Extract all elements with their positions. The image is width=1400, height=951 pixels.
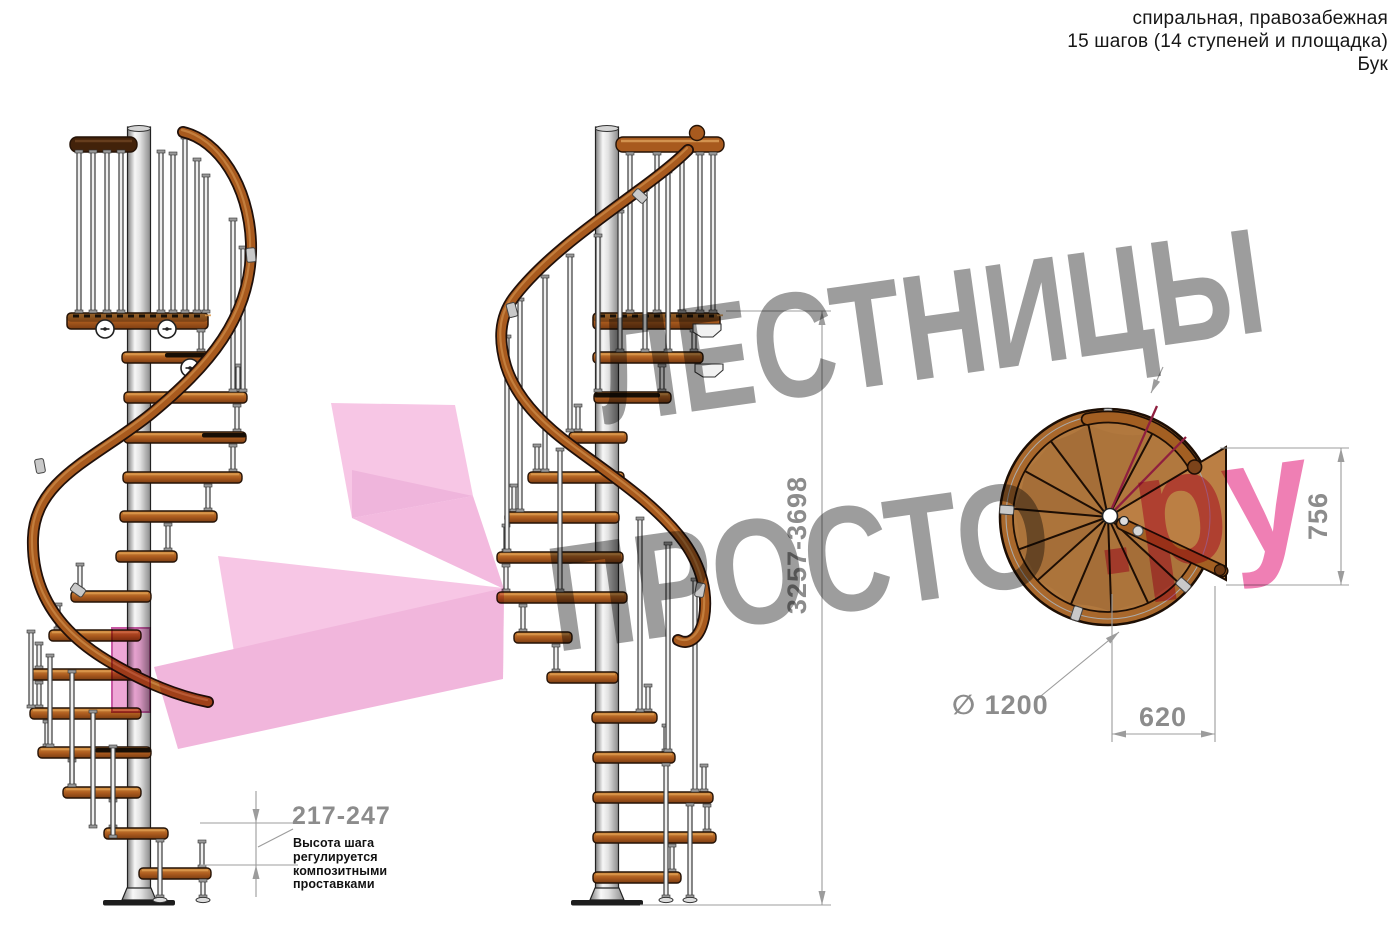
baluster-collar <box>664 749 672 752</box>
tread-dark-top <box>202 433 246 438</box>
baluster-collar <box>46 654 54 657</box>
baluster-collar <box>626 152 634 155</box>
baluster-collar <box>75 310 83 313</box>
baluster-collar <box>46 744 54 747</box>
baluster-collar <box>686 803 694 806</box>
baluster-foot <box>153 897 167 902</box>
baluster-collar <box>696 152 704 155</box>
baluster-collar <box>533 444 541 447</box>
baluster-collar <box>157 310 165 313</box>
top-handrail <box>616 137 724 152</box>
baluster-collar <box>35 681 43 684</box>
rail-sleeve <box>246 248 256 263</box>
baluster-collar <box>662 763 670 766</box>
baluster-collar <box>27 630 35 633</box>
baluster-collar <box>709 152 717 155</box>
baluster-collar <box>181 310 189 313</box>
pink-highlight-box <box>112 628 150 712</box>
baluster-collar <box>229 444 237 447</box>
baluster-collar <box>644 684 652 687</box>
dim-step-leader <box>258 829 293 847</box>
baluster-collar <box>68 784 76 787</box>
baluster-collar <box>164 523 172 526</box>
baluster-collar <box>519 604 527 607</box>
baluster-collar <box>636 709 644 712</box>
baluster-collar <box>541 275 549 278</box>
disc-center <box>165 327 169 331</box>
column-base-flare <box>122 888 156 900</box>
baluster-collar <box>68 670 76 673</box>
baluster-collar <box>700 764 708 767</box>
baluster-collar <box>27 705 35 708</box>
dim-diameter-label: ∅ 1200 <box>952 690 1049 720</box>
baluster-collar <box>157 150 165 153</box>
rail-sleeve <box>34 458 45 473</box>
baluster-collar <box>199 879 207 882</box>
column-cap <box>596 126 619 132</box>
baluster-collar <box>229 389 237 392</box>
spec-material: Бук <box>1067 53 1388 76</box>
baluster-collar <box>169 152 177 155</box>
baluster-collar <box>156 839 164 842</box>
baluster-collar <box>35 642 43 645</box>
baluster-collar <box>89 150 97 153</box>
baluster-collar <box>193 158 201 161</box>
baluster-collar <box>198 840 206 843</box>
dim-arrowhead <box>253 809 260 823</box>
baluster-collar <box>668 844 676 847</box>
baluster-collar <box>516 509 524 512</box>
baluster-collar <box>117 150 125 153</box>
baluster-collar <box>541 469 549 472</box>
baluster-collar <box>594 234 602 237</box>
dim-arrowhead <box>1201 731 1215 738</box>
dim-arrowhead <box>1338 571 1345 585</box>
baluster-collar <box>103 310 111 313</box>
baluster-collar <box>503 549 511 552</box>
baluster-collar <box>510 484 518 487</box>
baluster-foot <box>683 897 697 902</box>
baluster-collar <box>703 804 711 807</box>
baluster-collar <box>197 329 205 332</box>
baluster-collar <box>502 564 510 567</box>
baluster-collar <box>202 174 210 177</box>
step-height-note: Высота шага регулируется композитными пр… <box>293 837 387 892</box>
baluster-collar <box>239 389 247 392</box>
column-base-flare <box>590 888 624 900</box>
pink-arrow-watermark <box>112 403 504 749</box>
brand-watermark: ЛЕСТНИЦЫ ПРОСТО .ру <box>535 196 1322 687</box>
baluster-collar <box>75 150 83 153</box>
column-cap <box>128 126 151 132</box>
spec-steps: 15 шагов (14 ступеней и площадка) <box>1067 30 1388 53</box>
baluster-collar <box>109 835 117 838</box>
baluster-collar <box>109 745 117 748</box>
dim-arrowhead <box>819 891 826 905</box>
baluster-collar <box>193 310 201 313</box>
dim-arrowhead <box>1112 731 1126 738</box>
disc-center <box>103 327 107 331</box>
handrail-knob <box>690 126 705 141</box>
baluster-collar <box>202 310 210 313</box>
baluster-collar <box>89 825 97 828</box>
baluster-collar <box>691 789 699 792</box>
baluster-collar <box>204 484 212 487</box>
dim-arrowhead <box>1338 448 1345 462</box>
baluster-collar <box>556 448 564 451</box>
baluster-collar <box>566 429 574 432</box>
technical-drawing: 3257-3698 756 620 ∅ 1200 217-247 ЛЕСТНИЦ… <box>0 0 1400 951</box>
baluster-foot <box>659 897 673 902</box>
baluster-collar <box>117 310 125 313</box>
left-elevation-view <box>27 126 256 906</box>
baluster-collar <box>653 152 661 155</box>
tread-dark-top <box>95 748 151 753</box>
dim-step-height-label: 217-247 <box>292 802 391 830</box>
drawing-page: 3257-3698 756 620 ∅ 1200 217-247 ЛЕСТНИЦ… <box>0 0 1400 951</box>
dim-arrowhead <box>253 865 260 879</box>
spec-type: спиральная, правозабежная <box>1067 7 1388 30</box>
baluster-collar <box>574 404 582 407</box>
baluster-foot <box>196 897 210 902</box>
base-plate <box>571 900 643 906</box>
dim-arrowhead <box>1148 379 1160 395</box>
baluster-collar <box>233 404 241 407</box>
baluster-collar <box>103 150 111 153</box>
baluster-collar <box>169 310 177 313</box>
baluster-collar <box>229 218 237 221</box>
baluster-collar <box>89 310 97 313</box>
baluster-collar <box>89 710 97 713</box>
dim-landing-width-label: 620 <box>1139 702 1187 732</box>
spec-header: спиральная, правозабежная 15 шагов (14 с… <box>1067 7 1388 76</box>
baluster-collar <box>566 254 574 257</box>
watermark-suffix: .ру <box>1077 398 1322 610</box>
baluster-collar <box>76 563 84 566</box>
